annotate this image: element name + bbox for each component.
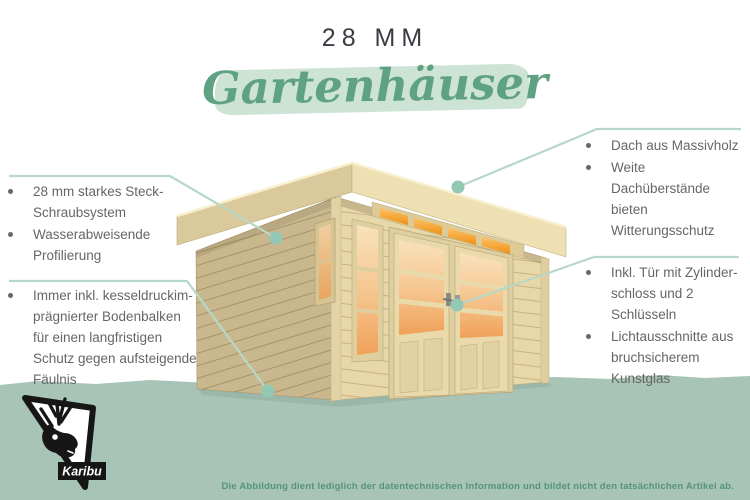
bullet-icon <box>8 232 13 237</box>
footer-disclaimer: Die Abbildung dient lediglich der datent… <box>221 481 734 492</box>
callout-text: Dach aus Massivholz <box>611 135 739 156</box>
bullet-icon <box>8 189 13 194</box>
bullet-icon <box>586 270 591 275</box>
side-window <box>315 218 335 306</box>
callout-item: Immer inkl. kesseldruckim- prägnierter B… <box>8 285 218 390</box>
door-left <box>394 233 449 397</box>
callout-text: Lichtausschnitte aus bruchsicherem Kunst… <box>611 326 748 389</box>
callout-item: Dach aus Massivholz <box>586 135 748 156</box>
logo-wordmark: Karibu <box>62 465 102 479</box>
callout-left-top: 28 mm starkes Steck- Schraubsystem Wasse… <box>8 181 213 267</box>
callout-text: Immer inkl. kesseldruckim- prägnierter B… <box>33 285 197 390</box>
callout-right-top: Dach aus Massivholz Weite Dachüberstände… <box>586 135 748 242</box>
bullet-icon <box>8 293 13 298</box>
title-size-label: 28 MM <box>0 24 750 53</box>
callout-text: Wasserabweisende Profilierung <box>33 224 150 266</box>
double-door <box>389 227 513 399</box>
callout-item: Weite Dachüberstände bieten Witterungssc… <box>586 157 748 241</box>
bullet-icon <box>586 143 591 148</box>
leader-dot-door <box>451 299 464 312</box>
callout-item: Inkl. Tür mit Zylinder- schloss und 2 Sc… <box>586 262 748 325</box>
callout-item: Wasserabweisende Profilierung <box>8 224 213 266</box>
infographic-page: 28 MM Gartenhäuser 28 mm starkes Steck- … <box>0 0 750 500</box>
callout-item: 28 mm starkes Steck- Schraubsystem <box>8 181 213 223</box>
front-window <box>352 219 383 362</box>
bullet-icon <box>586 165 591 170</box>
door-right <box>455 246 508 394</box>
callout-item: Lichtausschnitte aus bruchsicherem Kunst… <box>586 326 748 389</box>
callout-right-bottom: Inkl. Tür mit Zylinder- schloss und 2 Sc… <box>586 262 748 390</box>
leader-dot-roof <box>452 181 465 194</box>
title-category: Gartenhäuser <box>165 56 586 115</box>
callout-text: Inkl. Tür mit Zylinder- schloss und 2 Sc… <box>611 262 748 325</box>
callout-text: 28 mm starkes Steck- Schraubsystem <box>33 181 164 223</box>
callout-text: Weite Dachüberstände bieten Witterungssc… <box>611 157 748 241</box>
leader-dot-base <box>262 385 275 398</box>
karibu-logo: Karibu <box>10 390 120 495</box>
garden-house <box>177 163 566 401</box>
callout-left-bottom: Immer inkl. kesseldruckim- prägnierter B… <box>8 285 218 391</box>
bullet-icon <box>586 334 591 339</box>
leader-dot-wall <box>270 232 283 245</box>
